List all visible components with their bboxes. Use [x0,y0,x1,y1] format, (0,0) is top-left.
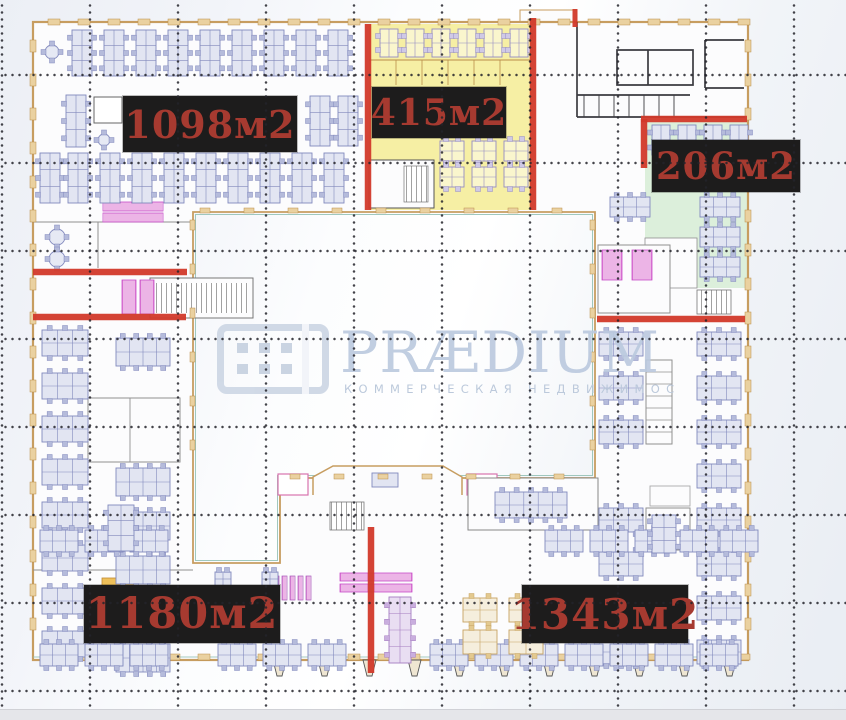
desk-cluster [308,640,346,671]
desk-cluster [116,334,170,371]
area-label-415: 415м2 [372,87,506,138]
desk-cluster [334,96,363,146]
desk-cluster [196,30,225,76]
desk-cluster [130,640,168,671]
desk-cluster [700,193,740,222]
floorplan-screenshot: 1098м2 415м2 206м2 1180м2 1343м2 PRÆDIUM… [0,0,846,720]
desk-cluster [697,416,741,449]
area-label-1343: 1343м2 [522,585,688,643]
desk-cluster [472,137,496,166]
desk-cluster [655,640,693,671]
desk-cluster [42,369,88,404]
desk-cluster [132,30,161,76]
desk-cluster [40,526,78,557]
desk-cluster [128,153,157,203]
area-label-1098: 1098м2 [123,96,297,152]
desk-cluster [700,253,740,282]
desk-cluster [565,640,603,671]
desk-cluster [192,153,221,203]
desk-cluster [288,153,317,203]
desk-cluster [64,153,93,203]
desk-cluster [306,96,335,146]
desk-cluster [42,455,88,490]
desk-cluster [440,163,464,192]
desk-cluster [700,223,740,252]
desk-cluster [440,137,464,166]
desk-cluster [697,548,741,581]
desk-cluster [42,412,88,447]
desk-cluster [697,592,741,625]
desk-cluster [116,464,170,501]
desk-cluster [42,584,88,619]
desk-cluster [42,326,88,361]
desk-cluster [599,328,643,361]
desk-cluster [590,526,628,557]
desk-cluster [40,640,78,671]
desk-cluster [292,30,321,76]
bottom-bar [0,709,846,720]
desk-cluster [320,153,349,203]
desk-cluster [228,30,257,76]
desk-cluster [472,163,496,192]
desk-cluster [62,95,91,147]
desk-cluster [697,460,741,493]
desk-cluster [104,505,139,551]
desk-cluster [463,594,497,627]
desk-cluster [697,372,741,405]
area-label-206: 206м2 [652,140,800,192]
desk-cluster [224,153,253,203]
desk-cluster [599,416,643,449]
desk-cluster [463,626,497,659]
desk-cluster [160,153,189,203]
desk-cluster [720,526,758,557]
desk-cluster [648,515,681,553]
desk-cluster [68,30,97,76]
desk-cluster [85,640,123,671]
desk-cluster [545,526,583,557]
desk-cluster [260,30,289,76]
desk-cluster [610,193,650,222]
desk-cluster [100,30,129,76]
desk-cluster [256,153,285,203]
desk-cluster [504,137,528,166]
desk-cluster [324,30,353,76]
desk-cluster [116,552,170,589]
desk-cluster [164,30,193,76]
desk-cluster [697,328,741,361]
desk-cluster [96,153,125,203]
desk-cluster [599,372,643,405]
desk-cluster [610,640,648,671]
desk-cluster [700,640,738,671]
desk-cluster [430,640,468,671]
area-label-1180: 1180м2 [84,585,280,643]
desk-cluster [385,597,416,663]
desk-cluster [495,488,567,523]
desk-cluster [263,640,301,671]
desk-cluster [218,640,256,671]
desk-cluster [504,163,528,192]
desk-cluster [680,526,718,557]
desk-cluster [36,153,65,203]
